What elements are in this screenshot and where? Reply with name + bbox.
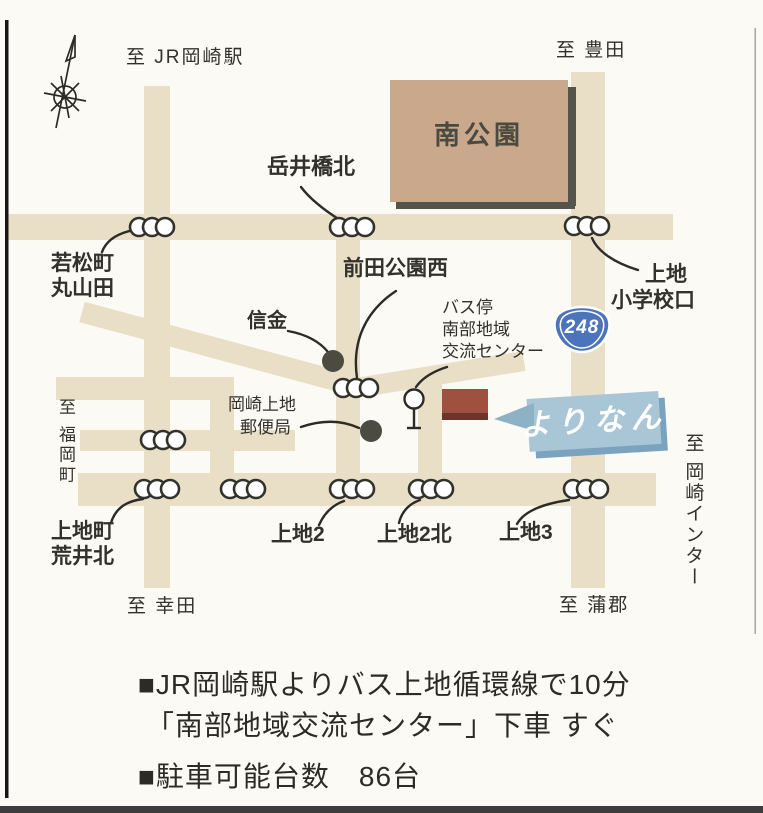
road-west-stub [56, 377, 234, 400]
label-to-kota: 至 幸田 [127, 596, 197, 618]
park-name: 南公園 [390, 120, 568, 151]
label-to-okazaki-ic: 至 岡崎インター [681, 433, 703, 643]
note-parking: ■駐車可能台数 86台 [138, 755, 421, 795]
post-office-dot [360, 420, 382, 442]
label-to-toyota: 至 豊田 [556, 40, 626, 62]
label-wakamatsu-line2: 丸山田 [51, 277, 114, 302]
label-to-jr-okazaki: 至 JR岡崎駅 [126, 47, 245, 69]
label-to-gamagori: 至 蒲郡 [559, 595, 629, 617]
label-uejicho-line1: 上地町 [51, 520, 114, 545]
scan-line-left [5, 20, 9, 798]
label-to-fukuoka: 至 福岡町 [55, 398, 75, 498]
signal-uejicho-arai [135, 480, 179, 498]
note-access-line2: 「南部地域交流センター」下車 すぐ [146, 704, 619, 744]
label-takeibashi-kita: 岳井橋北 [267, 154, 355, 180]
leader-maeda [356, 291, 396, 378]
label-ueji3: 上地3 [499, 521, 553, 546]
label-bus-stop-line3: 交流センター [442, 342, 544, 362]
facility-name: よりなん [527, 391, 662, 452]
label-ueji2-kita: 上地2北 [377, 523, 452, 548]
signal-ueji2 [330, 480, 374, 498]
scan-band-bottom [0, 806, 763, 813]
road-diagonal [82, 312, 356, 386]
signal-ueji-elem [565, 217, 609, 235]
park-shadow-bottom [396, 201, 575, 209]
signal-takeibashi [330, 218, 374, 236]
label-maeda-koen-nishi: 前田公園西 [343, 257, 448, 282]
label-shinkin: 信金 [247, 310, 287, 334]
label-ueji-elem-line1: 上地 [645, 263, 687, 288]
compass-icon [44, 35, 86, 128]
note-access-line1: ■JR岡崎駅よりバス上地循環線で10分 [138, 663, 631, 703]
label-bus-stop-line1: バス停 [442, 298, 493, 318]
label-post-office-line1: 岡崎上地 [228, 395, 296, 415]
signal-mid-left [141, 431, 185, 449]
leader-shinkin [288, 331, 328, 352]
scan-line-right [755, 28, 756, 634]
signal-main-2 [221, 480, 265, 498]
label-uejicho-line2: 荒井北 [51, 545, 114, 570]
label-ueji-elem-line2: 小学校口 [611, 289, 695, 314]
signal-ueji2-kita [409, 480, 453, 498]
access-map-page: 至 JR岡崎駅 至 豊田 至 福岡町 至 岡崎インター 至 幸田 至 蒲郡 南公… [0, 0, 763, 813]
shinkin-dot [322, 350, 344, 372]
route-248-number: 248 [556, 306, 608, 350]
signal-maeda [334, 379, 378, 397]
label-bus-stop-line2: 南部地域 [442, 320, 510, 340]
signal-ueji3 [564, 480, 608, 498]
facility-building [442, 389, 488, 420]
label-ueji2: 上地2 [271, 523, 325, 548]
signal-wakamatsu [130, 218, 174, 236]
label-post-office-line2: 郵便局 [240, 418, 291, 438]
park-shadow-right [568, 87, 576, 206]
label-wakamatsu-line1: 若松町 [51, 252, 114, 277]
